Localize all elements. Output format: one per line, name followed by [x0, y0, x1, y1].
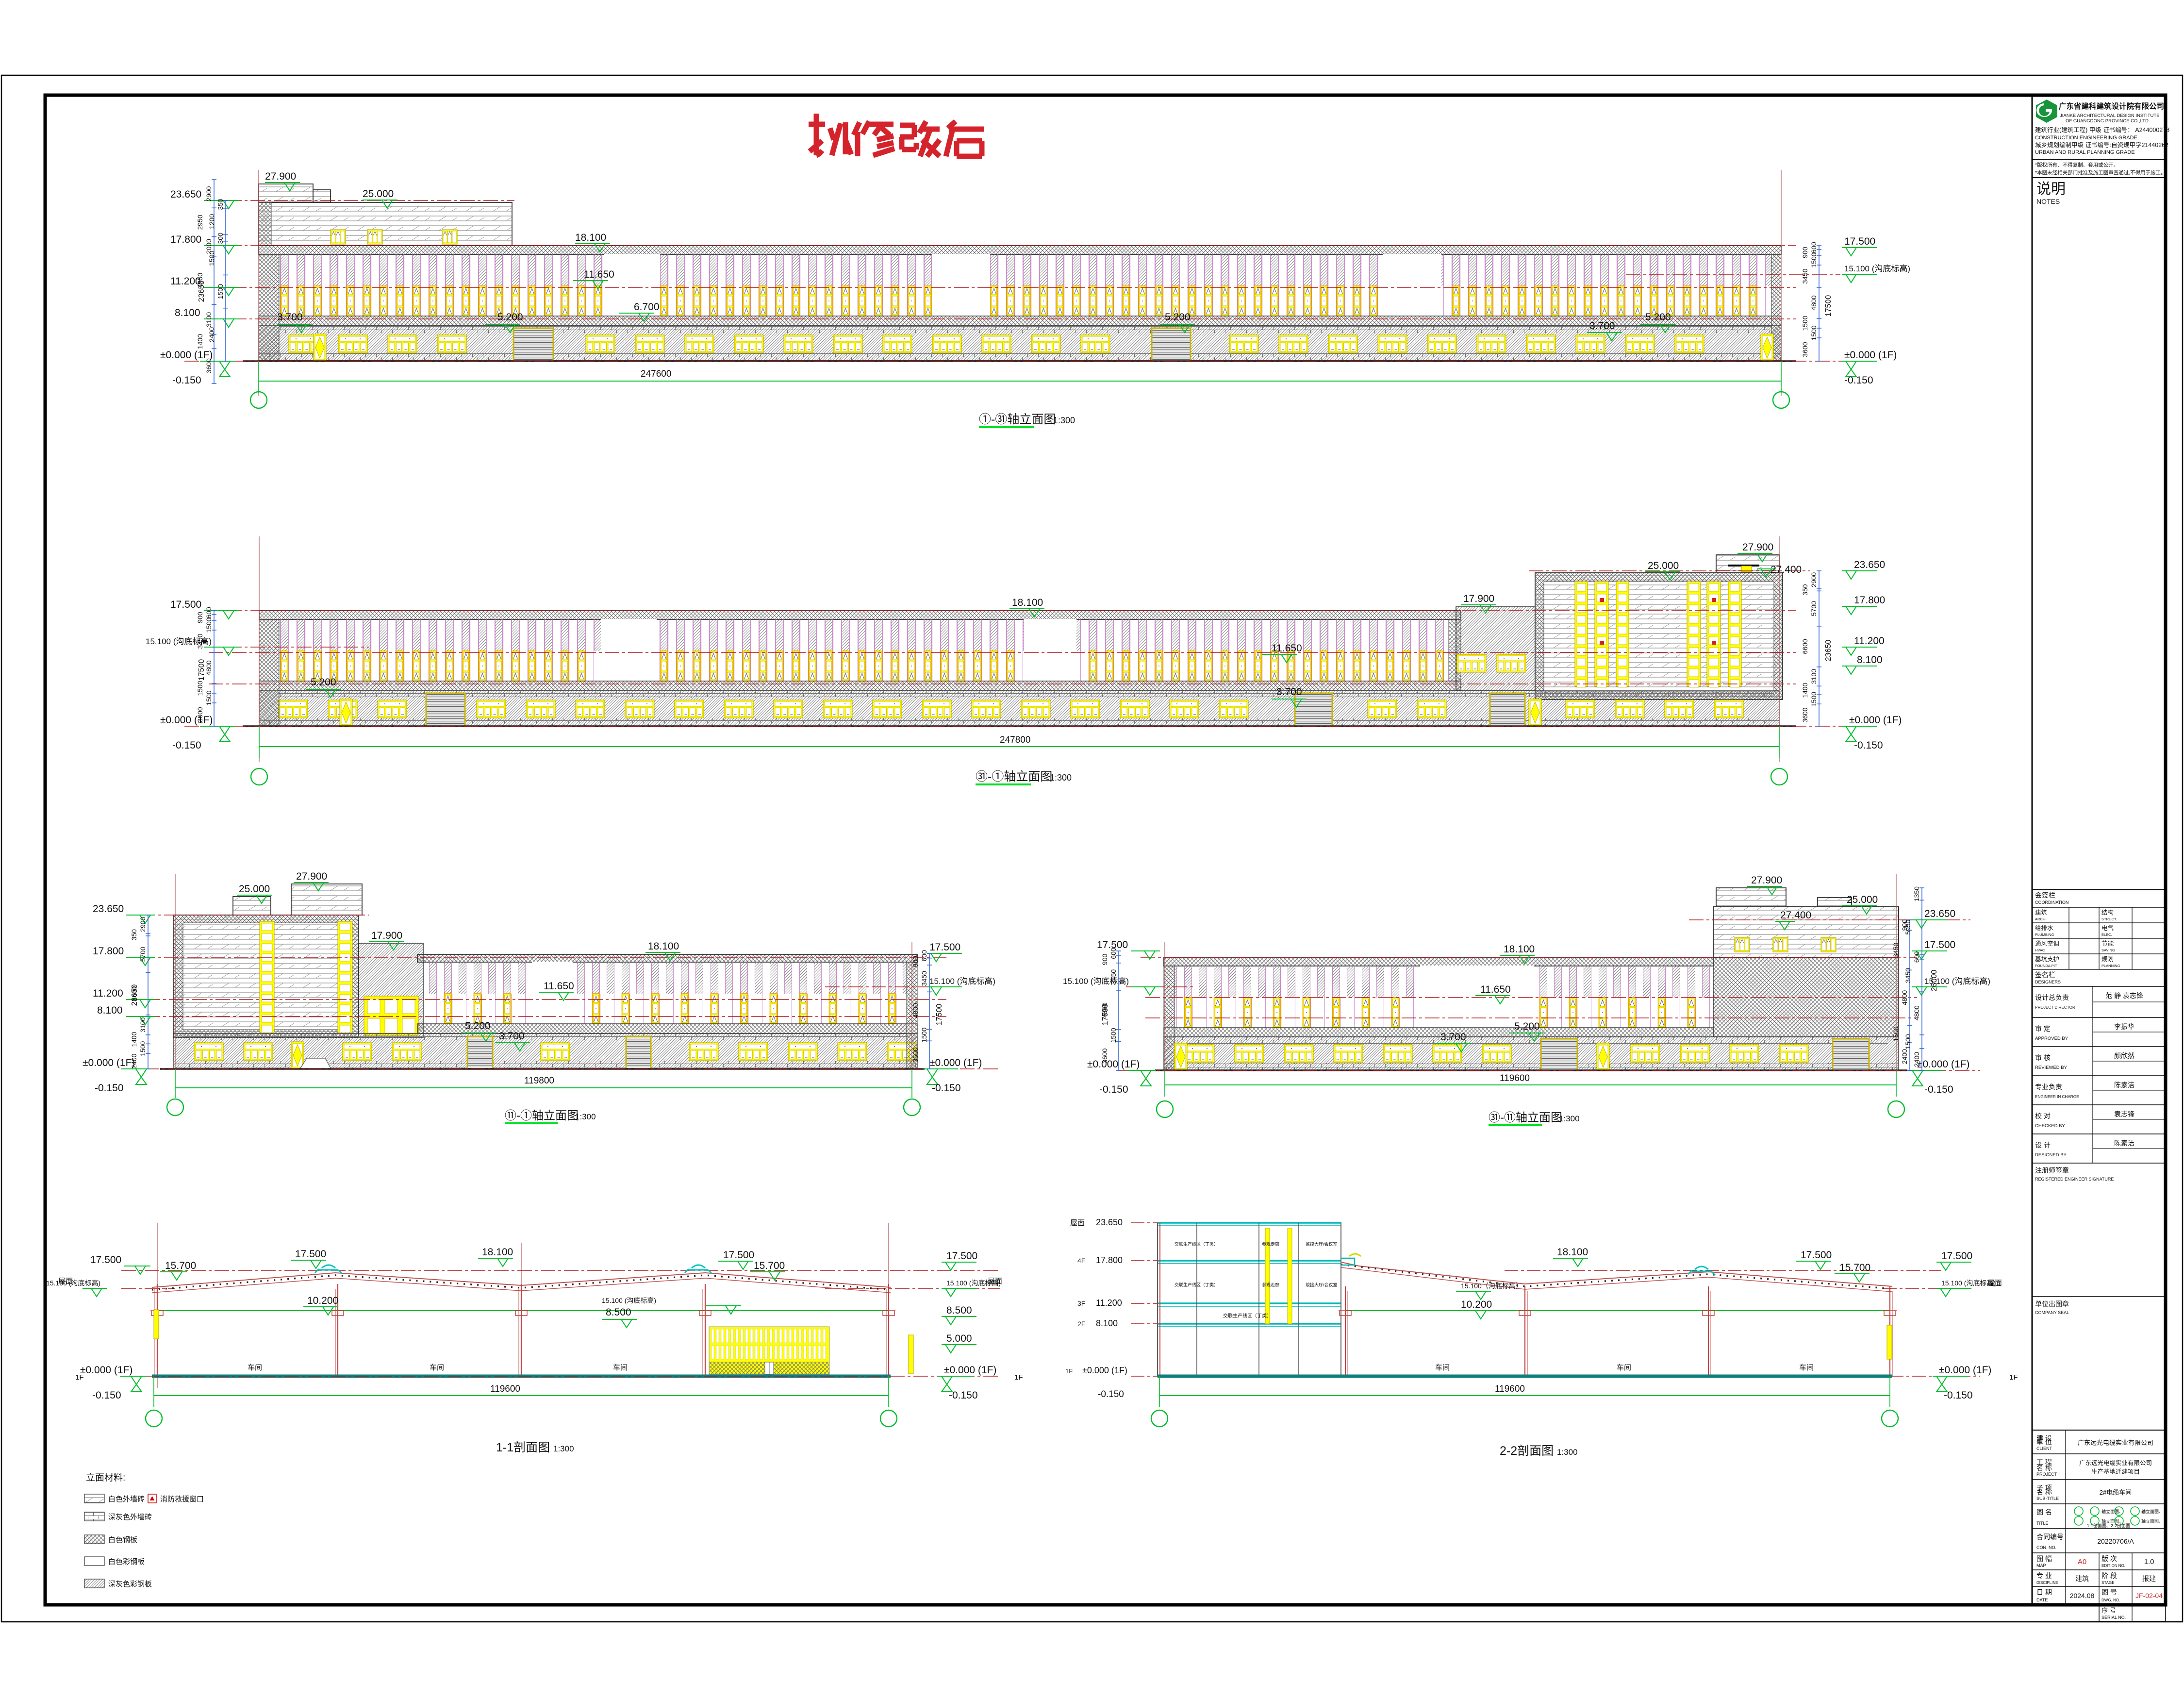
svg-text:119800: 119800 [524, 1076, 554, 1086]
svg-text:11.200: 11.200 [93, 988, 123, 999]
svg-text:陈素洁: 陈素洁 [2114, 1139, 2134, 1147]
svg-text:建筑行业(建筑工程) 甲级 证书编号： A24400027: 建筑行业(建筑工程) 甲级 证书编号： A244000278 [2035, 126, 2169, 133]
svg-text:15.100 (沟底标高): 15.100 (沟底标高) [929, 977, 995, 986]
svg-text:27.400: 27.400 [1770, 564, 1802, 575]
svg-text:3600: 3600 [1801, 342, 1809, 357]
svg-text:车间: 车间 [1617, 1364, 1631, 1372]
svg-text:4800: 4800 [1810, 295, 1818, 310]
svg-text:23.650: 23.650 [93, 903, 124, 915]
svg-text:1350: 1350 [1913, 886, 1920, 901]
svg-text:1500: 1500 [196, 681, 204, 696]
svg-text:1-1剖面图、2-2剖面图: 1-1剖面图、2-2剖面图 [2087, 1523, 2130, 1528]
svg-text:CHECKED BY: CHECKED BY [2035, 1123, 2065, 1129]
svg-text:⑪-①轴立面图: ⑪-①轴立面图 [505, 1109, 579, 1122]
svg-text:1500: 1500 [208, 251, 215, 266]
svg-text:参观走廊: 参观走廊 [1262, 1282, 1279, 1287]
svg-text:交联生产线区（丁类）: 交联生产线区（丁类） [1175, 1282, 1218, 1287]
svg-text:5.200: 5.200 [1645, 312, 1671, 323]
svg-text:17500: 17500 [198, 659, 206, 681]
svg-text:广东远光电缆实业有限公司: 广东远光电缆实业有限公司 [2078, 1439, 2153, 1447]
svg-text:设 计: 设 计 [2035, 1141, 2051, 1149]
svg-text:-0.150: -0.150 [1924, 1084, 1953, 1095]
svg-text:350: 350 [216, 199, 224, 210]
svg-text:26000: 26000 [1930, 970, 1938, 992]
svg-text:轴立面图、: 轴立面图、 [2141, 1518, 2163, 1524]
svg-text:竣接大厅/会议室: 竣接大厅/会议室 [1306, 1282, 1338, 1287]
svg-text:DWG. NO.: DWG. NO. [2101, 1598, 2120, 1602]
svg-text:陈素洁: 陈素洁 [2114, 1081, 2134, 1089]
svg-text:MAP: MAP [2036, 1563, 2046, 1568]
svg-text:17.800: 17.800 [170, 234, 201, 245]
svg-text:27.400: 27.400 [1780, 910, 1811, 921]
svg-text:5.000: 5.000 [946, 1333, 972, 1344]
svg-text:3450: 3450 [920, 971, 928, 986]
svg-text:119600: 119600 [490, 1384, 520, 1394]
svg-text:15.100（沟底标高）: 15.100（沟底标高） [1461, 1282, 1522, 1290]
svg-text:DATE: DATE [2036, 1598, 2048, 1602]
svg-text:1400: 1400 [196, 334, 204, 349]
svg-text:车间: 车间 [613, 1364, 628, 1372]
svg-text:车间: 车间 [248, 1364, 262, 1372]
svg-text:基坑支护: 基坑支护 [2035, 955, 2059, 963]
svg-text:1F: 1F [1065, 1367, 1073, 1375]
svg-text:COORDINATION: COORDINATION [2035, 900, 2068, 905]
svg-text:①-㉛轴立面图: ①-㉛轴立面图 [979, 413, 1056, 426]
svg-text:1500: 1500 [1810, 325, 1818, 340]
svg-text:图 号: 图 号 [2101, 1588, 2117, 1596]
svg-text:李振华: 李振华 [2114, 1023, 2134, 1031]
svg-text:18.100: 18.100 [482, 1247, 513, 1258]
svg-text:±0.000 (1F): ±0.000 (1F) [929, 1057, 982, 1068]
svg-text:CONSTRUCTION ENGINEERING GRADE: CONSTRUCTION ENGINEERING GRADE [2035, 135, 2137, 141]
svg-text:CLIENT: CLIENT [2036, 1446, 2052, 1451]
svg-text:会签栏: 会签栏 [2035, 891, 2055, 899]
svg-text:3450: 3450 [196, 633, 204, 649]
svg-text:18.100: 18.100 [575, 232, 606, 243]
svg-text:通风空调: 通风空调 [2035, 940, 2059, 947]
svg-text:27.900: 27.900 [1742, 542, 1773, 553]
svg-text:4800: 4800 [1901, 990, 1908, 1005]
svg-text:900: 900 [1801, 247, 1809, 258]
svg-text:2900: 2900 [1810, 572, 1818, 587]
svg-text:轴立面图、: 轴立面图、 [2141, 1509, 2163, 1514]
svg-text:23650: 23650 [1824, 640, 1833, 662]
svg-text:-0.150: -0.150 [1098, 1389, 1124, 1399]
svg-text:-0.150: -0.150 [172, 375, 201, 386]
svg-text:2024.08: 2024.08 [2070, 1592, 2095, 1599]
svg-text:SERIAL NO.: SERIAL NO. [2101, 1615, 2126, 1620]
svg-text:白色钢板: 白色钢板 [108, 1535, 137, 1544]
svg-text:23.650: 23.650 [170, 189, 201, 200]
svg-text:17.800: 17.800 [93, 946, 124, 957]
svg-text:1F: 1F [75, 1373, 84, 1382]
svg-text:119600: 119600 [1500, 1073, 1530, 1083]
svg-text:11.650: 11.650 [1480, 984, 1511, 995]
svg-text:8.100: 8.100 [1096, 1318, 1118, 1328]
svg-text:广东省建科建筑设计院有限公司: 广东省建科建筑设计院有限公司 [2059, 101, 2164, 111]
svg-text:17.500: 17.500 [723, 1249, 754, 1261]
svg-text:5950: 5950 [1904, 919, 1912, 934]
svg-text:1-1剖面图: 1-1剖面图 [496, 1441, 550, 1454]
svg-text:3.700: 3.700 [277, 312, 303, 323]
svg-text:18.100: 18.100 [1012, 597, 1043, 608]
svg-text:-0.150: -0.150 [1844, 375, 1873, 386]
svg-text:1500: 1500 [1810, 692, 1818, 707]
svg-text:17.900: 17.900 [371, 930, 402, 941]
svg-text:专业负责: 专业负责 [2035, 1083, 2062, 1091]
svg-text:3.700: 3.700 [1589, 320, 1615, 332]
svg-text:17500: 17500 [1101, 1004, 1109, 1026]
svg-text:车间: 车间 [430, 1364, 444, 1372]
svg-text:参观走廊: 参观走廊 [1262, 1241, 1279, 1247]
svg-text:2400: 2400 [208, 327, 215, 342]
svg-text:2#电缆车间: 2#电缆车间 [2100, 1489, 2132, 1496]
svg-text:23.650: 23.650 [1924, 908, 1955, 919]
svg-text:A0: A0 [2078, 1558, 2086, 1566]
svg-text:CON. NO.: CON. NO. [2036, 1545, 2056, 1550]
svg-text:5.200: 5.200 [1514, 1021, 1540, 1032]
svg-text:名 称: 名 称 [2036, 1488, 2052, 1496]
svg-text:±0.000 (1F): ±0.000 (1F) [80, 1365, 132, 1376]
svg-text:17500: 17500 [1824, 295, 1833, 317]
svg-text:3.700: 3.700 [499, 1031, 525, 1042]
svg-text:日 期: 日 期 [2036, 1588, 2052, 1596]
svg-text:3100: 3100 [205, 312, 213, 327]
svg-text:SUB-TITLE: SUB-TITLE [2036, 1496, 2059, 1501]
svg-text:DISCIPLINE: DISCIPLINE [2036, 1581, 2058, 1585]
svg-text:车间: 车间 [1799, 1364, 1814, 1372]
svg-text:JIANKE ARCHITECTURAL DESIGN IN: JIANKE ARCHITECTURAL DESIGN INSTITUTE [2060, 113, 2160, 118]
svg-text:3600: 3600 [1801, 707, 1809, 722]
svg-text:URBAN AND RURAL PLANNING GRADE: URBAN AND RURAL PLANNING GRADE [2035, 150, 2135, 155]
svg-text:PLANNING: PLANNING [2101, 964, 2120, 968]
svg-text:2-2剖面图: 2-2剖面图 [1500, 1444, 1554, 1458]
svg-text:15.100 (沟底标高): 15.100 (沟底标高) [602, 1297, 656, 1304]
svg-text:2950: 2950 [196, 215, 204, 230]
svg-text:15.700: 15.700 [754, 1260, 785, 1271]
svg-text:STAGE: STAGE [2101, 1581, 2115, 1585]
svg-text:600: 600 [1810, 242, 1818, 253]
svg-text:8.500: 8.500 [606, 1307, 631, 1318]
svg-text:轴立面图、: 轴立面图、 [2101, 1509, 2123, 1514]
svg-text:签名栏: 签名栏 [2035, 971, 2055, 979]
svg-text:600: 600 [205, 607, 213, 618]
svg-text:119600: 119600 [1495, 1384, 1525, 1394]
svg-text:±0.000 (1F): ±0.000 (1F) [1939, 1365, 1991, 1376]
svg-text:8.100: 8.100 [1857, 654, 1883, 666]
svg-text:300: 300 [216, 233, 224, 244]
svg-text:±0.000 (1F): ±0.000 (1F) [944, 1365, 996, 1376]
svg-text:3450: 3450 [1801, 268, 1809, 283]
svg-text:1:300: 1:300 [553, 1444, 574, 1453]
svg-text:10.200: 10.200 [307, 1295, 338, 1306]
svg-text:1:300: 1:300 [1053, 416, 1075, 425]
svg-text:*版权所有、不得复制、套用或公开。: *版权所有、不得复制、套用或公开。 [2035, 162, 2118, 168]
svg-text:-0.150: -0.150 [949, 1390, 978, 1401]
svg-text:900: 900 [911, 956, 919, 967]
svg-text:18.100: 18.100 [648, 941, 679, 952]
svg-text:1.0: 1.0 [2144, 1558, 2154, 1566]
svg-text:3450: 3450 [1904, 968, 1912, 983]
svg-text:17.500: 17.500 [929, 942, 960, 953]
svg-text:TITLE: TITLE [2036, 1521, 2049, 1526]
svg-text:2400: 2400 [1913, 1052, 1920, 1067]
svg-text:建筑: 建筑 [2075, 1575, 2089, 1582]
svg-text:EDITION NO.: EDITION NO. [2101, 1564, 2125, 1568]
svg-text:247600: 247600 [641, 369, 671, 379]
svg-text:±0.000 (1F): ±0.000 (1F) [1082, 1366, 1127, 1375]
svg-text:1500: 1500 [139, 1041, 147, 1056]
svg-text:3F: 3F [1077, 1299, 1085, 1307]
svg-text:11.650: 11.650 [1272, 643, 1302, 654]
svg-text:5.200: 5.200 [497, 312, 523, 323]
svg-text:审 定: 审 定 [2035, 1025, 2051, 1033]
svg-text:4800: 4800 [205, 660, 213, 675]
svg-text:PROJECT: PROJECT [2036, 1472, 2057, 1477]
svg-text:18.100: 18.100 [1557, 1247, 1588, 1258]
svg-text:深灰色外墙砖: 深灰色外墙砖 [108, 1513, 152, 1521]
svg-text:REVIEWED BY: REVIEWED BY [2035, 1065, 2068, 1070]
svg-text:序 号: 序 号 [2101, 1607, 2116, 1614]
svg-text:350: 350 [130, 929, 138, 941]
svg-text:图 名: 图 名 [2036, 1508, 2052, 1516]
svg-text:规划: 规划 [2101, 955, 2114, 963]
svg-text:审 核: 审 核 [2035, 1054, 2051, 1062]
svg-text:DESIGNERS: DESIGNERS [2035, 980, 2061, 984]
svg-text:PROJECT DIRECTOR: PROJECT DIRECTOR [2035, 1005, 2075, 1010]
svg-text:3600: 3600 [911, 1047, 919, 1062]
svg-text:23650: 23650 [198, 281, 206, 302]
svg-text:-0.150: -0.150 [1854, 740, 1883, 751]
svg-text:广东远光电缆实业有限公司: 广东远光电缆实业有限公司 [2079, 1459, 2152, 1466]
svg-text:袁志锋: 袁志锋 [2114, 1110, 2134, 1118]
svg-text:600: 600 [1109, 948, 1117, 959]
svg-text:27.900: 27.900 [296, 871, 327, 882]
svg-text:NOTES: NOTES [2036, 198, 2060, 205]
svg-text:25.000: 25.000 [1847, 894, 1878, 905]
svg-text:1:300: 1:300 [1557, 1448, 1578, 1457]
svg-text:报建: 报建 [2142, 1575, 2156, 1582]
svg-text:5.200: 5.200 [1165, 312, 1191, 323]
svg-text:单 位: 单 位 [2036, 1438, 2052, 1446]
svg-text:15.700: 15.700 [1839, 1262, 1870, 1273]
svg-text:15.100 (沟底标高): 15.100 (沟底标高) [46, 1279, 100, 1287]
svg-text:名 称: 名 称 [2036, 1464, 2052, 1472]
svg-text:屋面: 屋面 [1070, 1219, 1085, 1227]
svg-text:17.500: 17.500 [1801, 1249, 1832, 1261]
svg-text:监控大厅/会议室: 监控大厅/会议室 [1306, 1241, 1338, 1247]
svg-text:DESIGNED BY: DESIGNED BY [2035, 1152, 2067, 1158]
svg-text:17.500: 17.500 [295, 1249, 326, 1260]
svg-text:6600: 6600 [1801, 639, 1809, 654]
svg-text:ELEC.: ELEC. [2101, 933, 2112, 937]
svg-text:5.200: 5.200 [465, 1020, 491, 1032]
svg-text:17.800: 17.800 [1854, 595, 1885, 606]
svg-text:1400: 1400 [1801, 683, 1809, 698]
svg-text:JF-02-04: JF-02-04 [2135, 1592, 2163, 1599]
svg-text:COMPANY SEAL: COMPANY SEAL [2035, 1310, 2069, 1315]
svg-text:17.500: 17.500 [1941, 1250, 1972, 1262]
svg-text:247800: 247800 [1000, 735, 1030, 745]
svg-text:5700: 5700 [139, 947, 147, 962]
svg-text:电气: 电气 [2101, 924, 2114, 932]
svg-text:-0.150: -0.150 [932, 1083, 961, 1094]
svg-text:2400: 2400 [1901, 1049, 1908, 1064]
svg-text:±0.000 (1F): ±0.000 (1F) [1849, 715, 1902, 726]
svg-text:说明: 说明 [2036, 181, 2066, 197]
svg-text:1500: 1500 [205, 617, 213, 633]
svg-text:3.700: 3.700 [1440, 1032, 1466, 1043]
svg-text:11.200: 11.200 [1096, 1298, 1122, 1308]
svg-text:白色外墙砖: 白色外墙砖 [108, 1495, 145, 1503]
svg-text:STRUCT.: STRUCT. [2101, 917, 2117, 921]
svg-text:8.500: 8.500 [946, 1305, 972, 1316]
svg-text:结构: 结构 [2101, 909, 2114, 916]
svg-text:白色彩钢板: 白色彩钢板 [108, 1557, 145, 1566]
svg-text:11.200: 11.200 [1854, 635, 1885, 647]
svg-text:15.100 (沟底标高): 15.100 (沟底标高) [1844, 264, 1910, 273]
svg-text:车间: 车间 [1435, 1364, 1450, 1372]
svg-text:3600: 3600 [1101, 1048, 1109, 1063]
svg-text:1400: 1400 [130, 1032, 138, 1047]
svg-text:PLUMBING: PLUMBING [2035, 933, 2054, 937]
svg-text:3100: 3100 [1810, 669, 1818, 684]
svg-text:1200: 1200 [208, 214, 215, 229]
svg-text:23.650: 23.650 [1096, 1217, 1123, 1227]
svg-text:15.700: 15.700 [165, 1260, 196, 1271]
svg-text:APPROVED BY: APPROVED BY [2035, 1036, 2068, 1041]
svg-text:消防救援窗口: 消防救援窗口 [160, 1495, 204, 1503]
svg-text:㉛-①轴立面图: ㉛-①轴立面图 [976, 770, 1052, 783]
svg-text:节能: 节能 [2101, 940, 2114, 947]
svg-text:*本图未经相关部门批准及施工图审查通过,不得用于施工。: *本图未经相关部门批准及施工图审查通过,不得用于施工。 [2035, 169, 2166, 176]
svg-text:20220706/A: 20220706/A [2097, 1537, 2134, 1545]
svg-text:-0.150: -0.150 [1099, 1084, 1128, 1095]
svg-text:1F: 1F [2009, 1373, 2018, 1382]
svg-text:2900: 2900 [139, 916, 147, 932]
svg-text:ARCHI.: ARCHI. [2035, 917, 2047, 921]
svg-text:27.900: 27.900 [265, 171, 296, 182]
svg-text:17.500: 17.500 [1844, 236, 1875, 247]
svg-text:OF GUANGDONG PROVINCE CO.,LTD.: OF GUANGDONG PROVINCE CO.,LTD. [2066, 118, 2150, 124]
svg-text:3.700: 3.700 [1276, 686, 1302, 698]
svg-text:11.650: 11.650 [544, 981, 574, 992]
svg-text:颜欣然: 颜欣然 [2114, 1052, 2134, 1060]
svg-text:1:300: 1:300 [575, 1112, 596, 1121]
svg-text:图 幅: 图 幅 [2036, 1555, 2052, 1563]
svg-text:范 静 袁志锋: 范 静 袁志锋 [2105, 992, 2143, 999]
svg-text:交联生产线区（丁类）: 交联生产线区（丁类） [1223, 1313, 1272, 1319]
svg-text:3600: 3600 [205, 358, 213, 373]
svg-text:-0.150: -0.150 [1944, 1390, 1973, 1401]
svg-text:设计总负责: 设计总负责 [2035, 994, 2069, 1001]
svg-text:建筑: 建筑 [2035, 909, 2048, 916]
svg-text:2F: 2F [1077, 1320, 1085, 1328]
svg-text:17.500: 17.500 [170, 599, 201, 610]
svg-text:1500: 1500 [1810, 252, 1818, 267]
svg-text:SAVING: SAVING [2101, 948, 2115, 952]
svg-text:25.000: 25.000 [239, 883, 270, 895]
svg-text:11.650: 11.650 [584, 269, 614, 280]
svg-text:8.100: 8.100 [175, 307, 200, 318]
svg-text:23650: 23650 [131, 984, 139, 1006]
svg-text:㉛-⑪轴立面图: ㉛-⑪轴立面图 [1489, 1111, 1562, 1124]
svg-text:版 次: 版 次 [2101, 1555, 2117, 1563]
svg-text:10.200: 10.200 [1461, 1299, 1492, 1310]
svg-text:5700: 5700 [1810, 601, 1818, 616]
svg-text:±0.000 (1F): ±0.000 (1F) [1917, 1059, 1969, 1070]
svg-text:17.500: 17.500 [946, 1250, 977, 1262]
svg-text:1:300: 1:300 [1050, 773, 1072, 783]
svg-text:ENGINEER IN CHARGE: ENGINEER IN CHARGE [2035, 1095, 2079, 1099]
svg-text:900: 900 [1101, 954, 1109, 966]
svg-text:1F: 1F [1014, 1373, 1023, 1382]
svg-text:17.800: 17.800 [1096, 1255, 1123, 1265]
svg-text:-0.150: -0.150 [172, 740, 201, 751]
svg-text:深灰色彩钢板: 深灰色彩钢板 [108, 1580, 152, 1588]
svg-text:专 业: 专 业 [2036, 1572, 2052, 1580]
svg-text:25.000: 25.000 [363, 188, 394, 200]
svg-text:15.100 (沟底标高): 15.100 (沟底标高) [946, 1279, 1001, 1287]
svg-text:FOUNDA.PIT: FOUNDA.PIT [2035, 964, 2057, 968]
svg-text:18.100: 18.100 [1504, 944, 1535, 955]
svg-text:3100: 3100 [139, 1017, 147, 1033]
svg-text:600: 600 [1913, 951, 1920, 963]
svg-text:3450: 3450 [1892, 943, 1900, 958]
svg-text:±0.000 (1F): ±0.000 (1F) [1087, 1059, 1140, 1070]
svg-text:城乡规划编制甲级 证书编号:自资规甲字21440262: 城乡规划编制甲级 证书编号:自资规甲字21440262 [2035, 141, 2168, 149]
svg-text:15.100 (沟底标高): 15.100 (沟底标高) [1941, 1279, 1996, 1287]
svg-text:8.100: 8.100 [97, 1005, 123, 1016]
svg-text:±0.000 (1F): ±0.000 (1F) [1844, 350, 1897, 361]
svg-text:-0.150: -0.150 [95, 1083, 124, 1094]
svg-text:2900: 2900 [205, 186, 213, 201]
svg-text:合同编号: 合同编号 [2036, 1533, 2064, 1541]
svg-text:2400: 2400 [130, 1053, 138, 1068]
svg-text:27.900: 27.900 [1751, 875, 1782, 886]
svg-text:-0.150: -0.150 [92, 1390, 121, 1401]
svg-text:1500: 1500 [920, 1028, 928, 1043]
svg-text:17.500: 17.500 [1924, 939, 1955, 950]
svg-text:给排水: 给排水 [2035, 925, 2053, 932]
svg-text:单位出图章: 单位出图章 [2035, 1300, 2069, 1308]
svg-text:立面材料:: 立面材料: [86, 1472, 125, 1483]
svg-text:900: 900 [196, 612, 204, 623]
svg-text:3600: 3600 [196, 707, 204, 722]
svg-text:350: 350 [1801, 584, 1809, 596]
svg-text:生产基地迁建项目: 生产基地迁建项目 [2091, 1468, 2140, 1475]
svg-text:4800: 4800 [1913, 1005, 1920, 1020]
svg-text:HVAC: HVAC [2035, 948, 2045, 952]
svg-text:17500: 17500 [935, 1004, 943, 1026]
svg-text:17.500: 17.500 [90, 1254, 121, 1266]
svg-text:1500: 1500 [1109, 1028, 1117, 1043]
svg-text:6.700: 6.700 [634, 301, 660, 313]
svg-text:校 对: 校 对 [2035, 1112, 2051, 1120]
svg-text:17.900: 17.900 [1463, 593, 1494, 604]
svg-text:1500: 1500 [205, 690, 213, 705]
svg-text:5.200: 5.200 [311, 677, 336, 688]
svg-text:3450: 3450 [1109, 969, 1117, 984]
svg-text:25.000: 25.000 [1648, 560, 1679, 571]
svg-text:阶 段: 阶 段 [2101, 1572, 2117, 1580]
svg-text:1500: 1500 [1904, 1034, 1912, 1049]
svg-text:1:300: 1:300 [1559, 1114, 1580, 1123]
svg-text:注册师签章: 注册师签章 [2035, 1166, 2069, 1174]
svg-text:REGISTERED ENGINEER SIGNATURE: REGISTERED ENGINEER SIGNATURE [2035, 1177, 2114, 1182]
svg-text:1500: 1500 [216, 284, 224, 299]
svg-text:交联生产线区（丁类）: 交联生产线区（丁类） [1175, 1241, 1218, 1247]
